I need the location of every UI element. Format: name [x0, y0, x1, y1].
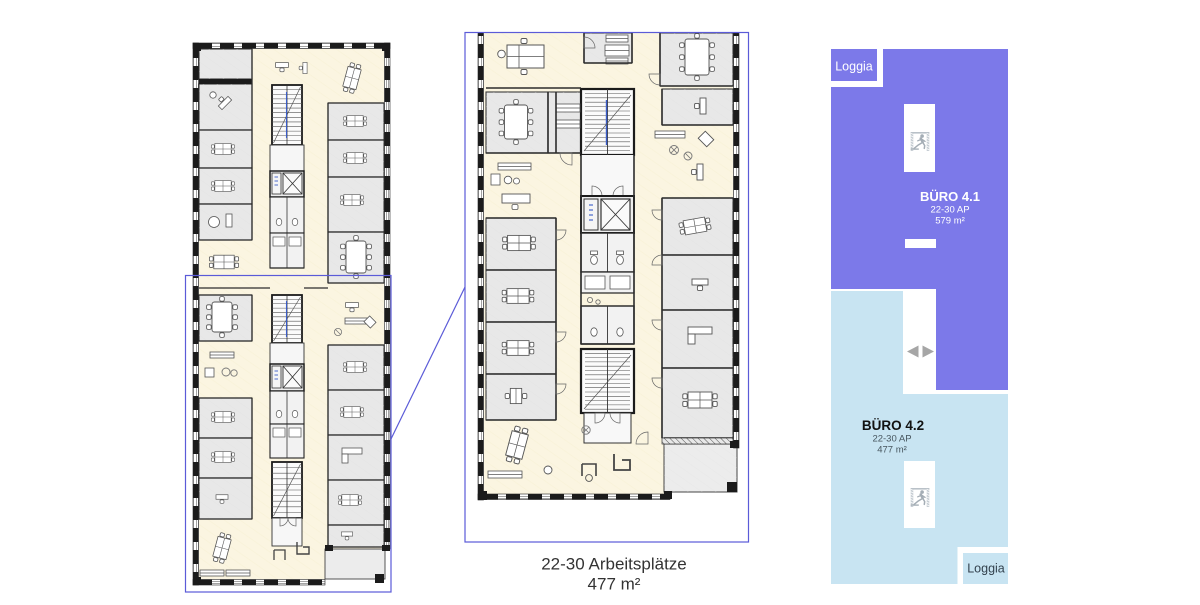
svg-text:Loggia: Loggia [835, 60, 873, 74]
svg-text:579 m²: 579 m² [935, 216, 965, 227]
svg-text:Loggia: Loggia [967, 562, 1005, 576]
svg-text:22-30 AP: 22-30 AP [872, 434, 911, 445]
svg-text:BÜRO 4.2: BÜRO 4.2 [862, 418, 924, 433]
svg-text:22-30 Arbeitsplätze: 22-30 Arbeitsplätze [541, 555, 687, 574]
svg-text:477 m²: 477 m² [877, 445, 907, 456]
svg-text:BÜRO 4.1: BÜRO 4.1 [920, 189, 980, 204]
svg-text:22-30 AP: 22-30 AP [930, 205, 969, 216]
svg-text:477 m²: 477 m² [588, 575, 641, 594]
